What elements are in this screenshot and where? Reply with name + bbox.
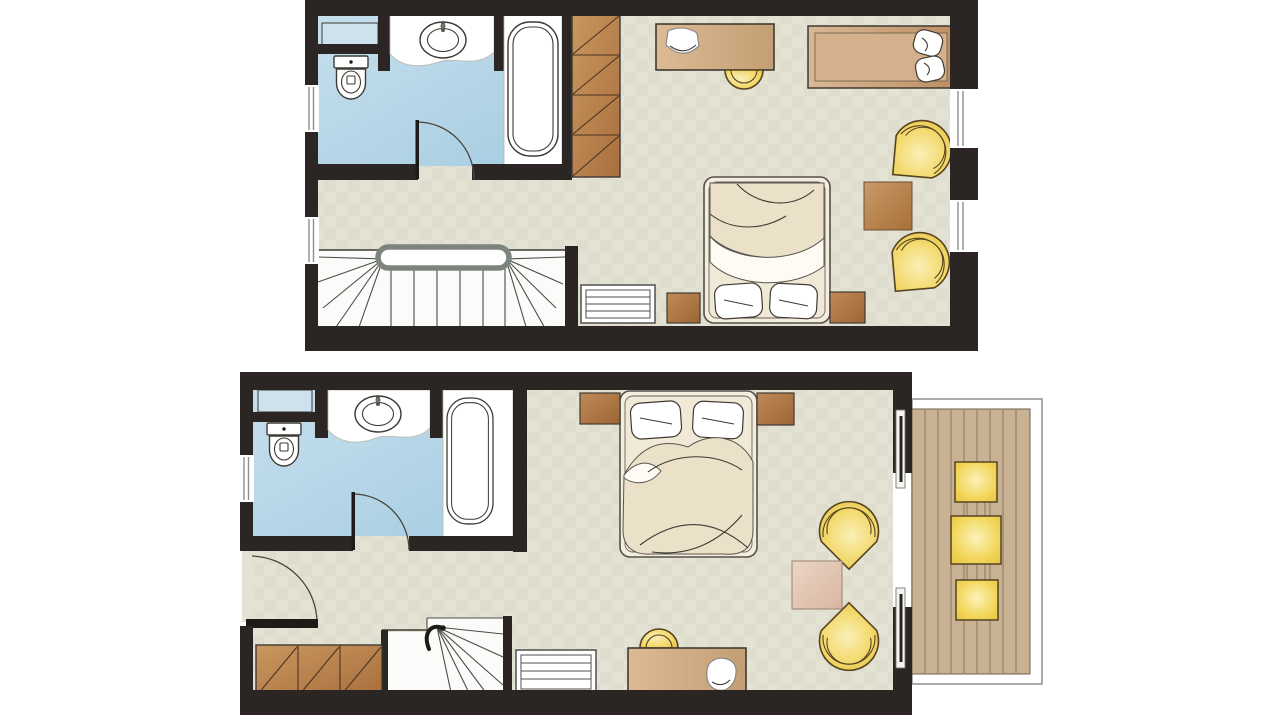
balcony-seat-cushion xyxy=(955,462,997,502)
lower-toilet-icon xyxy=(267,423,301,466)
upper-bath-south-wall xyxy=(472,164,572,180)
balcony-table-cushion xyxy=(951,516,1001,564)
lower-bathroom xyxy=(240,390,527,552)
lower-bath-wall-stub xyxy=(253,412,317,422)
lower-wardrobe xyxy=(256,645,382,695)
lower-bath-wall-stub xyxy=(430,390,443,438)
upper-nightstand-right xyxy=(830,292,865,323)
upper-bath-south-wall xyxy=(305,164,418,180)
floor-plan-image xyxy=(0,0,1279,720)
lower-bath-wall xyxy=(513,390,527,552)
upper-window-left-1 xyxy=(304,85,319,132)
lower-bathtub-icon xyxy=(447,398,493,524)
upper-desk-lamp-icon xyxy=(666,28,699,53)
upper-nightstand-left xyxy=(667,293,700,323)
upper-bath-wall-stub xyxy=(378,14,390,71)
upper-washbasin-icon xyxy=(420,21,466,58)
upper-bathroom xyxy=(305,14,572,180)
upper-window-right-2 xyxy=(950,200,978,252)
upper-staircase xyxy=(318,246,578,330)
lower-bath-wall-stub xyxy=(315,390,328,438)
lower-bath-south-wall xyxy=(409,536,527,551)
lower-bath-south-wall xyxy=(240,536,353,551)
upper-bath-wall-stub xyxy=(318,44,380,54)
upper-radiator xyxy=(581,285,655,323)
sliding-balcony-door xyxy=(896,410,905,668)
upper-wardrobe xyxy=(572,14,620,177)
lower-double-bed xyxy=(620,391,757,557)
balcony-seating xyxy=(951,462,1001,620)
lower-nightstand-right xyxy=(757,393,794,425)
upper-window-right-1 xyxy=(950,89,978,148)
entry-threshold xyxy=(242,550,254,622)
lower-floor-plan xyxy=(239,372,1042,715)
lower-coffee-table xyxy=(792,561,842,609)
duvet xyxy=(710,183,824,258)
upper-bathtub-icon xyxy=(508,22,558,156)
upper-window-left-2 xyxy=(304,217,319,264)
upper-daybed xyxy=(808,26,954,88)
upper-side-table xyxy=(864,182,912,230)
upper-double-bed xyxy=(704,177,830,323)
upper-floor-plan xyxy=(304,0,978,351)
lower-washbasin-icon xyxy=(355,395,401,432)
lower-window-left xyxy=(239,455,254,502)
upper-bath-wall-stub xyxy=(494,14,504,71)
stair-wall-stub xyxy=(503,616,512,697)
lower-desk-lamp-icon xyxy=(707,658,736,690)
balcony xyxy=(912,399,1042,684)
floorplan-canvas xyxy=(0,0,1279,720)
upper-toilet-icon xyxy=(334,56,368,99)
balcony-seat-cushion xyxy=(956,580,998,620)
lower-bath-shelf xyxy=(258,390,312,412)
lower-radiator xyxy=(516,650,596,694)
lower-nightstand-left xyxy=(580,393,620,424)
upper-stair-handrail xyxy=(378,247,509,268)
upper-stair-wall-stub xyxy=(565,246,578,330)
upper-bath-shelf xyxy=(322,23,378,46)
upper-bath-wall xyxy=(562,14,572,180)
